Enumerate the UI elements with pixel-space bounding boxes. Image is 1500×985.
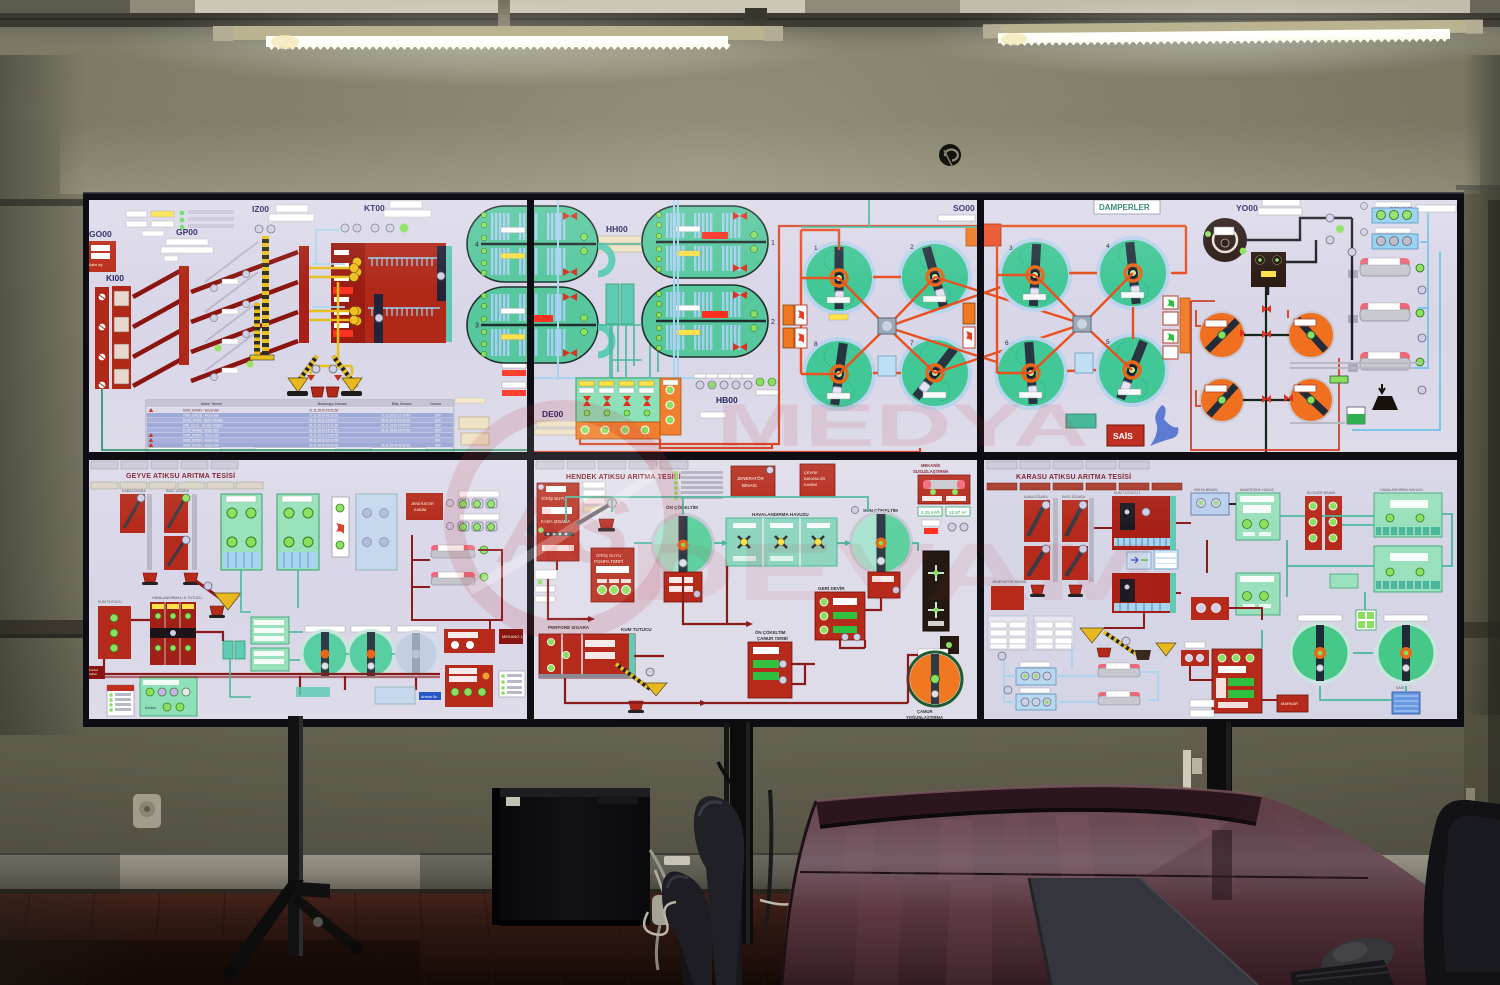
svg-text:8: 8 — [814, 341, 818, 348]
svg-text:26.11.2010 13:50:09: 26.11.2010 13:50:09 — [309, 433, 338, 437]
svg-text:26.11.2010 19:06:30: 26.11.2010 19:06:30 — [381, 418, 410, 422]
svg-text:26.11.2010 14:17:57: 26.11.2010 14:17:57 — [309, 428, 338, 432]
svg-text:ÖN ÇÖKELTİM: ÖN ÇÖKELTİM — [755, 630, 786, 635]
svg-text:MARKAR: MARKAR — [1281, 701, 1298, 706]
svg-text:SAİS: SAİS — [1113, 431, 1133, 441]
svg-text:7: 7 — [910, 340, 914, 347]
svg-text:SAİS: SAİS — [1396, 685, 1405, 690]
svg-text:26.11.2010 19:06:37: 26.11.2010 19:06:37 — [309, 418, 338, 422]
svg-text:KUM TUTUCU: KUM TUTUCU — [621, 627, 652, 632]
svg-text:3: 3 — [475, 323, 479, 330]
svg-text:26.11.2010 14:21:00: 26.11.2010 14:21:00 — [309, 423, 338, 427]
svg-text:27.11.2010 09:25:30: 27.11.2010 09:25:30 — [309, 413, 338, 417]
svg-text:MEKANO 1: MEKANO 1 — [502, 634, 523, 639]
svg-text:S000_ER101 - Arıza Var!: S000_ER101 - Arıza Var! — [183, 443, 219, 447]
svg-text:Arıtma Su: Arıtma Su — [421, 695, 437, 699]
svg-text:ÇAMUR: ÇAMUR — [917, 709, 933, 714]
svg-text:26.11.2010 10:41:55: 26.11.2010 10:41:55 — [309, 438, 338, 442]
svg-text:27.11.2010 12:03:49: 27.11.2010 12:03:49 — [381, 413, 410, 417]
svg-text:Y000_EP01B - Arıza Var!: Y000_EP01B - Arıza Var! — [183, 413, 219, 417]
svg-text:OFF: OFF — [435, 428, 441, 432]
svg-text:OFF: OFF — [435, 443, 441, 447]
svg-text:2: 2 — [771, 319, 775, 326]
svg-text:Bitiş Zamanı: Bitiş Zamanı — [392, 402, 412, 406]
svg-text:Kontrol: Kontrol — [145, 706, 156, 710]
svg-text:ON: ON — [435, 438, 440, 442]
svg-text:S000_ER34Y - Arıza Var!: S000_ER34Y - Arıza Var! — [183, 408, 219, 412]
svg-text:HAVALANDIRMALI K.TUTUCU: HAVALANDIRMALI K.TUTUCU — [152, 596, 202, 600]
svg-text:KUM TUTUCU: KUM TUTUCU — [98, 600, 122, 604]
svg-text:Kabini: Kabini — [89, 672, 97, 676]
svg-text:MEDYA: MEDYA — [716, 392, 1089, 459]
svg-text:S000_ER601 - Arıza Var!: S000_ER601 - Arıza Var! — [183, 433, 219, 437]
svg-text:26.11.2010 09:30:33: 26.11.2010 09:30:33 — [381, 443, 410, 447]
svg-text:Alarm Tanımı: Alarm Tanımı — [201, 402, 222, 406]
svg-text:DEVAM: DEVAM — [628, 527, 1158, 618]
svg-text:Durum: Durum — [430, 402, 441, 406]
svg-text:26.11.2010 09:30:20: 26.11.2010 09:30:20 — [309, 443, 338, 447]
svg-text:ON: ON — [435, 433, 440, 437]
svg-text:27.11.2010 19:01:50: 27.11.2010 19:01:50 — [309, 408, 338, 412]
svg-text:Başlangıç Zamanı: Başlangıç Zamanı — [318, 402, 347, 406]
svg-text:IZ00_IL101 - Seviye Düşük!: IZ00_IL101 - Seviye Düşük! — [183, 423, 223, 427]
svg-text:K100_EP302 - Arıza Var!: K100_EP302 - Arıza Var! — [183, 428, 219, 432]
svg-text:OFF: OFF — [435, 413, 441, 417]
svg-text:OFF: OFF — [435, 418, 441, 422]
svg-text:6: 6 — [1005, 340, 1009, 347]
svg-text:DC00_IF002 - Debi Yüksek!: DC00_IF002 - Debi Yüksek! — [183, 418, 223, 422]
svg-text:ÇAMUR TERBİ: ÇAMUR TERBİ — [757, 636, 788, 641]
svg-text:S000_ER301 - Arıza Var!: S000_ER301 - Arıza Var! — [183, 438, 219, 442]
svg-text:OFF: OFF — [435, 423, 441, 427]
svg-text:26.11.2010 15:00:07: 26.11.2010 15:00:07 — [381, 423, 410, 427]
svg-text:26.11.2010 14:17:52: 26.11.2010 14:17:52 — [381, 428, 410, 432]
